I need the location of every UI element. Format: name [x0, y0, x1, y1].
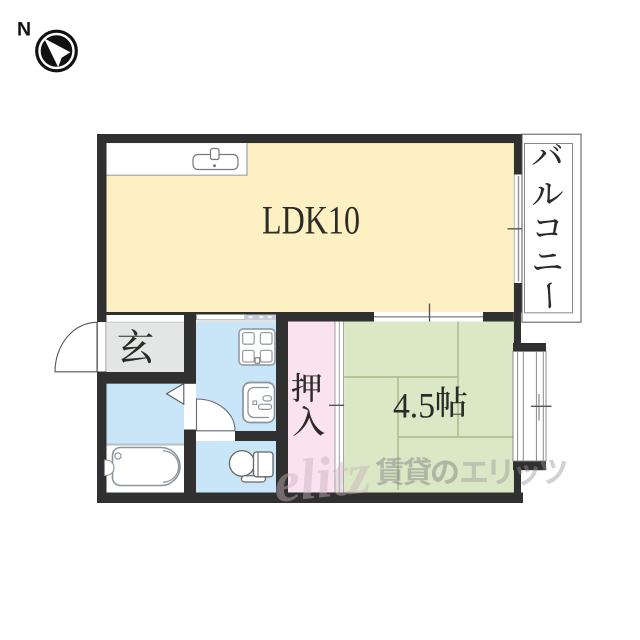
svg-text:N: N	[17, 19, 31, 41]
svg-text:elitz: elitz	[271, 440, 374, 515]
svg-text:LDK10: LDK10	[262, 198, 360, 243]
svg-text:4.5: 4.5	[393, 386, 435, 426]
